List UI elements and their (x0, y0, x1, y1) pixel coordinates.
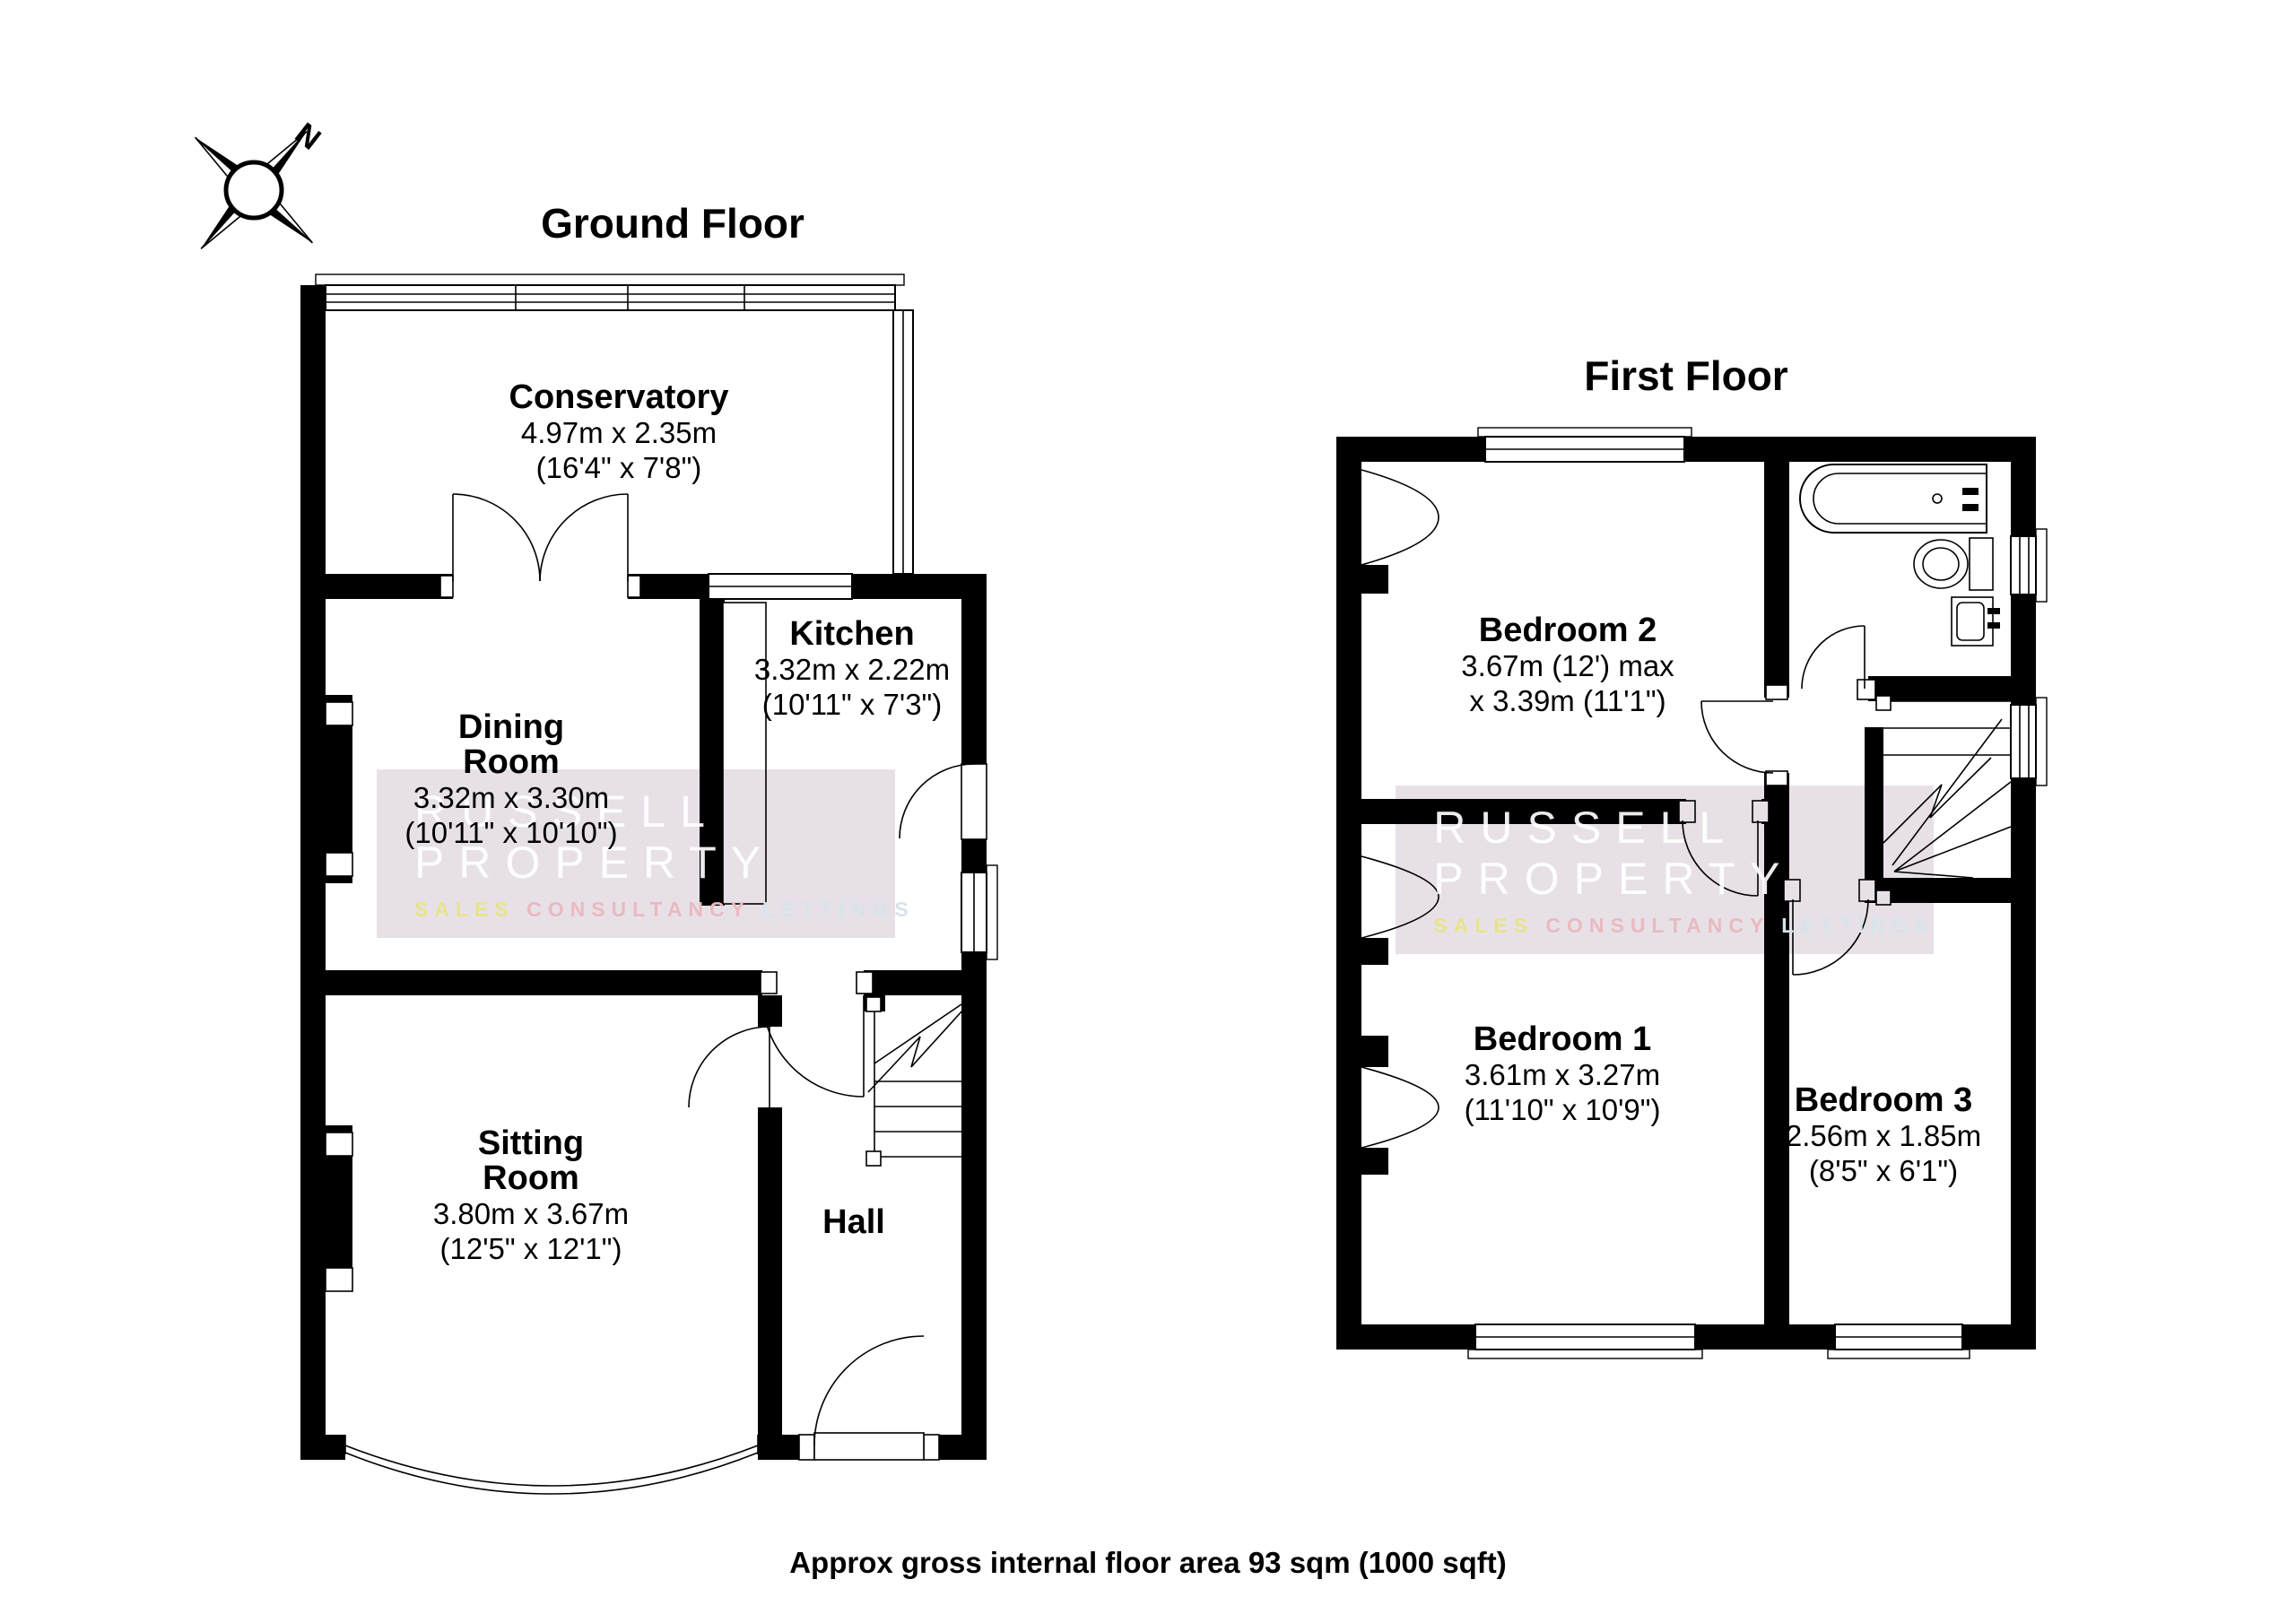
kitchen-window-top (709, 574, 852, 599)
watermark-lettings: LETTINGS (762, 898, 915, 921)
watermark-consultancy: CONSULTANCY (526, 898, 751, 921)
room-label-bedroom2: Bedroom 2 3.67m (12') max x 3.39m (11'1"… (1461, 613, 1674, 718)
room-label-hall: Hall (822, 1205, 885, 1240)
compass-icon: N (196, 117, 327, 249)
watermark-subline: SALES CONSULTANCY LETTINGS (1433, 914, 1934, 938)
bedroom2-door (1701, 685, 1787, 785)
compass-north-label: N (289, 117, 327, 157)
bedroom2-window (1478, 428, 1692, 462)
room-label-dining-room: Dining Room 3.32m x 3.30m (10'11" x 10'1… (404, 710, 617, 850)
room-label-bedroom1: Bedroom 1 3.61m x 3.27m (11'10" x 10'9") (1465, 1022, 1661, 1127)
bathtub-icon (1800, 464, 1987, 533)
room-label-bedroom3: Bedroom 3 2.56m x 1.85m (8'5" x 6'1") (1786, 1083, 1981, 1188)
bathroom-door (1802, 626, 1875, 699)
ground-floor-title: Ground Floor (541, 199, 804, 247)
ground-stairs (866, 997, 963, 1166)
watermark-first: RUSSELL PROPERTY SALES CONSULTANCY LETTI… (1396, 785, 1934, 954)
floor-area-note: Approx gross internal floor area 93 sqm … (789, 1546, 1507, 1580)
watermark-subline: SALES CONSULTANCY LETTINGS (414, 898, 915, 922)
bedroom1-window (1468, 1324, 1702, 1358)
toilet-icon (1914, 538, 1993, 590)
first-floor-title: First Floor (1584, 352, 1787, 400)
dining-chimney-breast (300, 695, 352, 883)
watermark-line2: PROPERTY (1433, 854, 1934, 905)
room-label-kitchen: Kitchen 3.32m x 2.22m (10'11" x 7'3") (754, 617, 950, 722)
watermark-sales: SALES (414, 898, 515, 921)
watermark-text-first: RUSSELL PROPERTY SALES CONSULTANCY LETTI… (1433, 803, 1934, 938)
bedroom3-window (1828, 1324, 1970, 1358)
floorplan-page: N (0, 0, 2296, 1623)
sink-icon (1952, 597, 2000, 646)
watermark-line1: RUSSELL (1433, 803, 1934, 854)
watermark-lettings: LETTINGS (1781, 914, 1934, 937)
room-label-sitting-room: Sitting Room 3.80m x 3.67m (12'5" x 12'1… (433, 1126, 629, 1266)
bathroom-window (2011, 529, 2047, 602)
sitting-chimney-breast (300, 1125, 352, 1291)
watermark-consultancy: CONSULTANCY (1545, 914, 1770, 937)
stairs-window (2011, 698, 2047, 785)
kitchen-window-side (961, 865, 997, 959)
sitting-room-door (689, 1027, 770, 1107)
floorplan-drawing: N (0, 0, 2296, 1623)
hall-dining-door (761, 972, 873, 1097)
bay-window (345, 1435, 758, 1494)
conservatory-french-doors (440, 494, 640, 597)
watermark-sales: SALES (1433, 914, 1534, 937)
front-door (799, 1336, 939, 1460)
room-label-conservatory: Conservatory 4.97m x 2.35m (16'4" x 7'8"… (509, 380, 729, 485)
